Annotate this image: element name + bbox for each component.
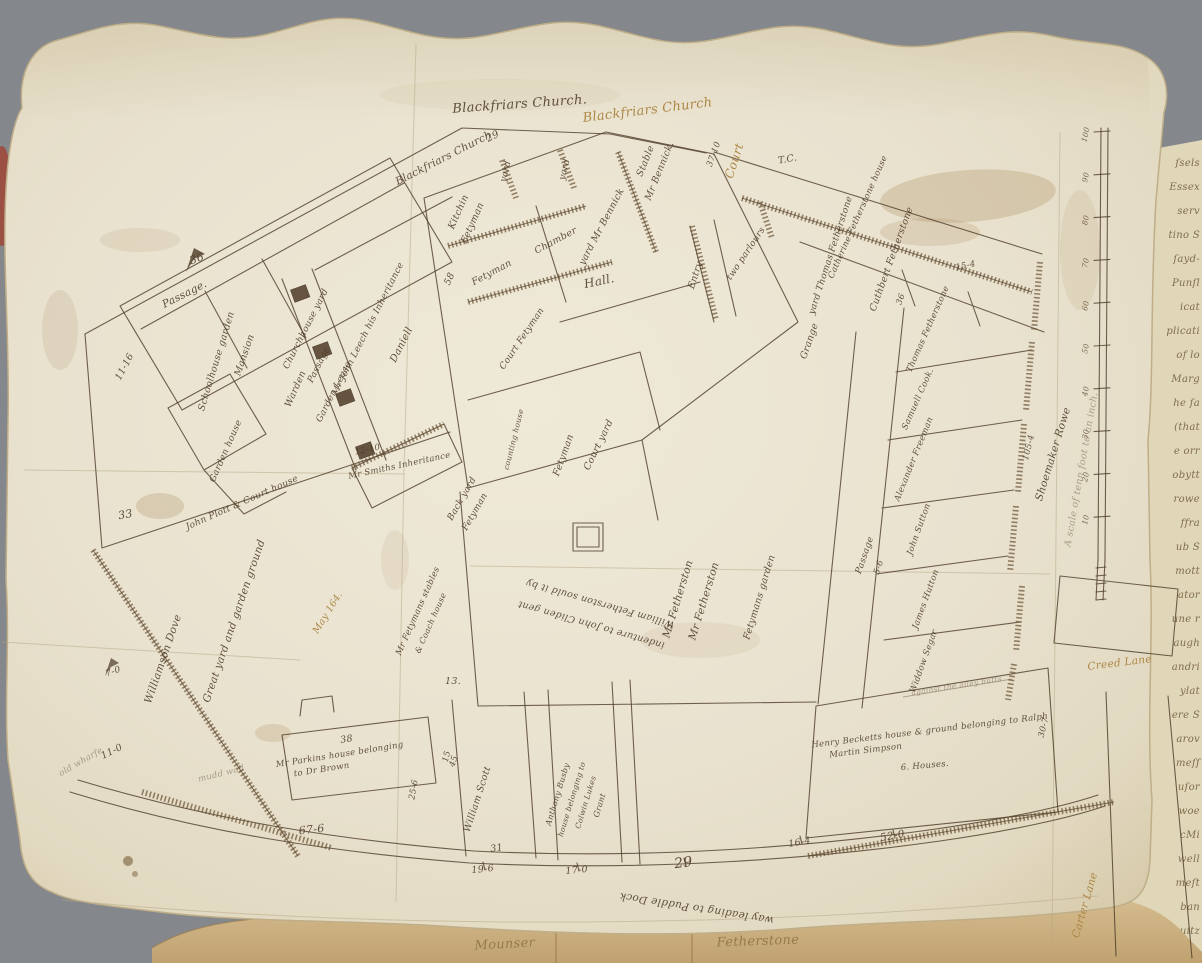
manuscript-text-line: he ſa xyxy=(1173,398,1200,409)
manuscript-text-line: uſor xyxy=(1178,782,1201,793)
manuscript-text-line: arov xyxy=(1176,734,1200,745)
manuscript-text-line: e orr xyxy=(1174,446,1201,457)
manuscript-text-line: ere S xyxy=(1172,710,1200,721)
manuscript-text-line: meſſ xyxy=(1176,758,1202,769)
manuscript-text-line: ban xyxy=(1180,902,1200,913)
manuscript-text-line: ylat xyxy=(1179,686,1201,697)
manuscript-text-line: woe xyxy=(1179,806,1200,817)
manuscript-text-line: augh xyxy=(1174,638,1200,649)
manuscript-text-line: plicati xyxy=(1166,326,1200,337)
manuscript-text-line: serv xyxy=(1177,206,1200,217)
scanned-parchment-plan: ſselsEssexservtino Sſayd-Punſlicatplicat… xyxy=(0,0,1202,963)
manuscript-text-line: andri xyxy=(1172,662,1200,673)
manuscript-text-line: ſayd- xyxy=(1172,254,1200,265)
manuscript-text-line: obytt xyxy=(1172,470,1200,481)
manuscript-text-line: rowe xyxy=(1174,494,1200,505)
manuscript-text-line: cMi xyxy=(1180,830,1200,841)
manuscript-text-line: mott xyxy=(1175,566,1200,577)
manuscript-text-line: ub S xyxy=(1176,542,1200,553)
manuscript-text-line: meſt xyxy=(1176,878,1201,889)
manuscript-text-line: ſsels xyxy=(1174,158,1200,169)
manuscript-text-line: of lo xyxy=(1176,350,1200,361)
manuscript-text-line: tino S xyxy=(1168,230,1200,241)
manuscript-text-line: Punſl xyxy=(1171,278,1200,289)
manuscript-text-line: well xyxy=(1178,854,1200,865)
plan-canvas: ſselsEssexservtino Sſayd-Punſlicatplicat… xyxy=(0,0,1202,963)
manuscript-text-line: ffra xyxy=(1180,518,1200,529)
manuscript-text-line: icat xyxy=(1180,302,1201,313)
manuscript-text-line: ator xyxy=(1178,590,1201,601)
manuscript-text-line: Marg xyxy=(1170,374,1200,385)
manuscript-text-line: (that xyxy=(1174,422,1201,433)
manuscript-text-line: Essex xyxy=(1168,182,1200,193)
